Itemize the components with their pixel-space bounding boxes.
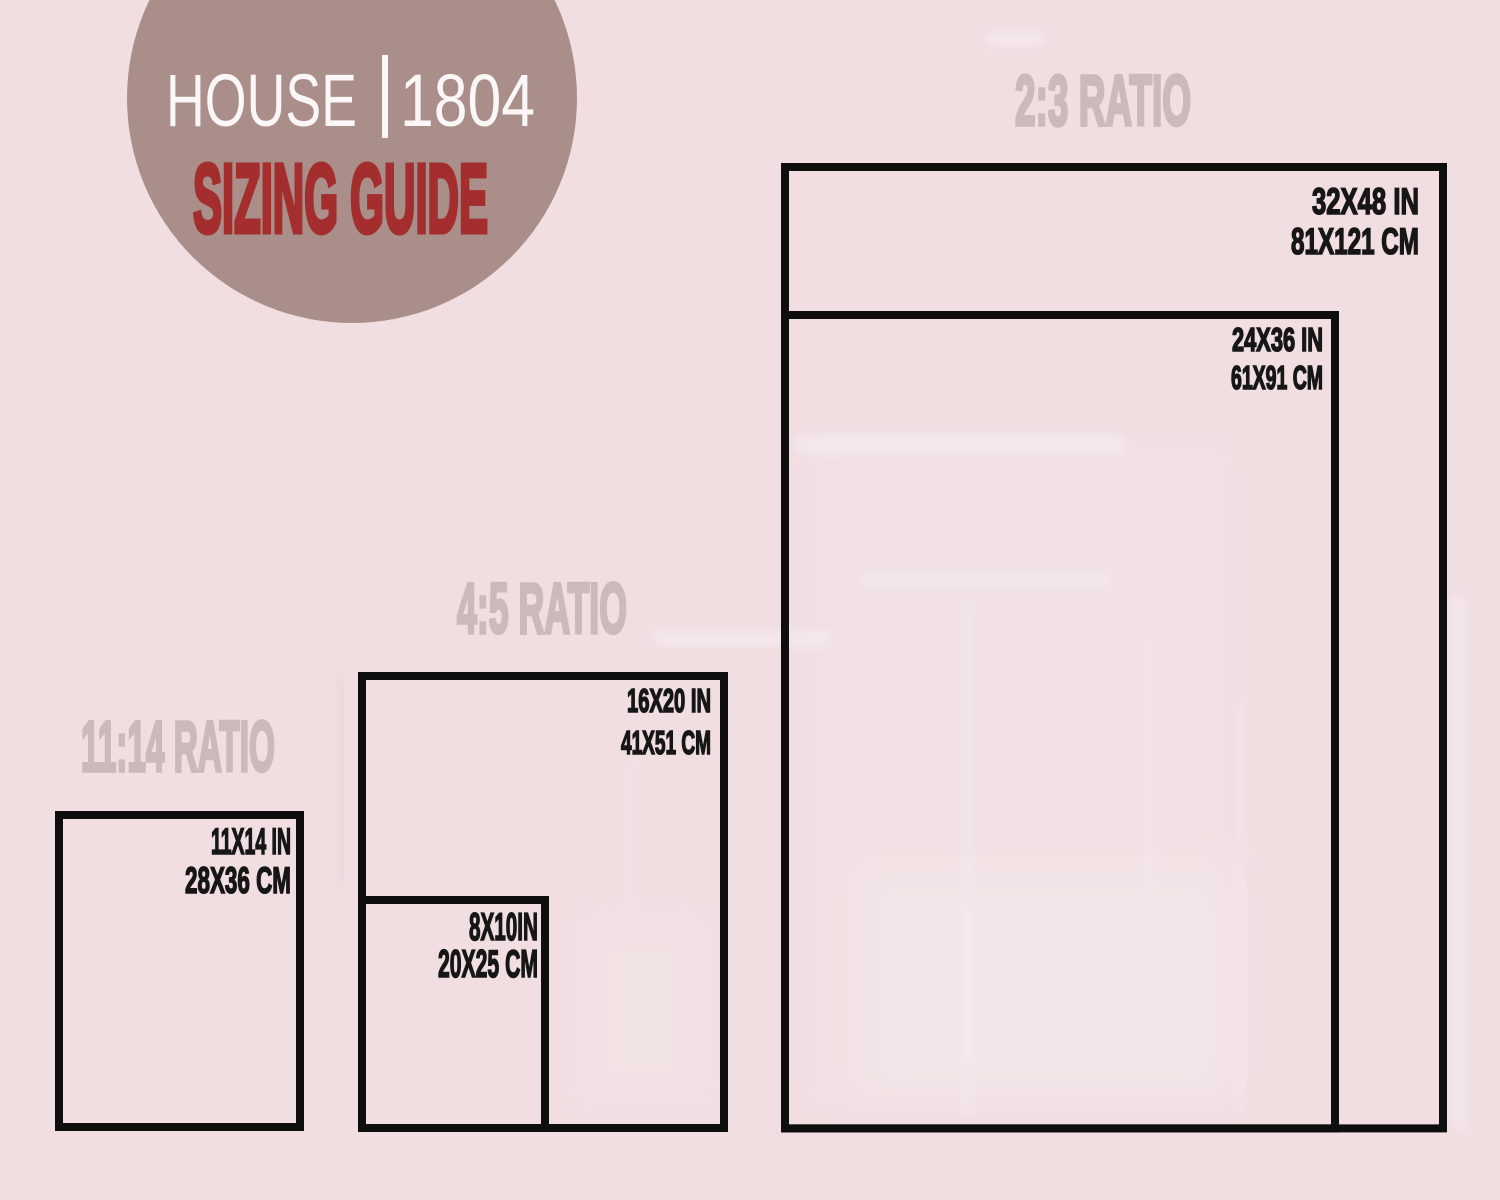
svg-text:11:14 RATIO: 11:14 RATIO <box>81 708 275 787</box>
svg-text:20X25 CM: 20X25 CM <box>438 943 538 986</box>
svg-text:28X36 CM: 28X36 CM <box>185 860 291 901</box>
svg-text:2:3 RATIO: 2:3 RATIO <box>1015 62 1191 141</box>
svg-text:41X51 CM: 41X51 CM <box>621 724 711 761</box>
svg-text:61X91 CM: 61X91 CM <box>1231 359 1323 396</box>
svg-text:1804: 1804 <box>400 59 535 142</box>
svg-text:24X36 IN: 24X36 IN <box>1232 321 1323 358</box>
svg-text:HOUSE: HOUSE <box>166 59 357 142</box>
svg-text:16X20 IN: 16X20 IN <box>627 682 711 719</box>
svg-text:11X14 IN: 11X14 IN <box>211 821 291 862</box>
svg-text:32X48 IN: 32X48 IN <box>1312 181 1419 222</box>
svg-text:81X121 CM: 81X121 CM <box>1291 221 1419 262</box>
svg-text:4:5 RATIO: 4:5 RATIO <box>457 570 627 649</box>
svg-text:SIZING GUIDE: SIZING GUIDE <box>193 144 488 253</box>
